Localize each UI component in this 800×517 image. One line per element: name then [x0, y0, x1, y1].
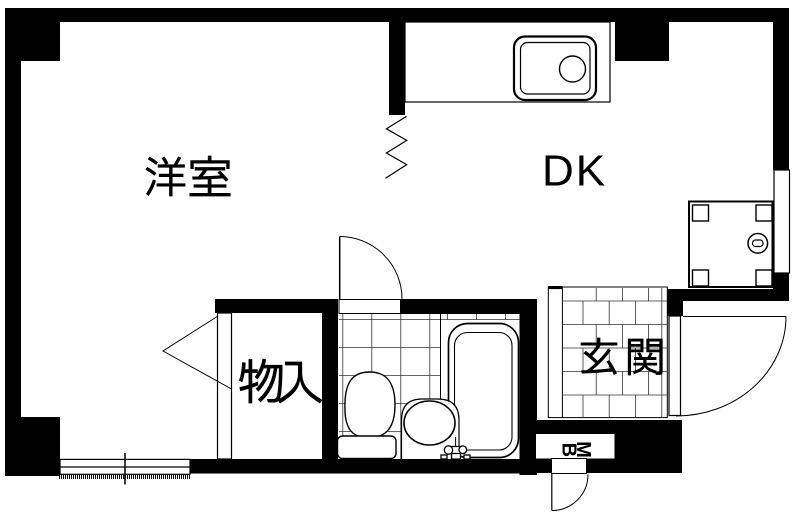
svg-text:M: M — [572, 441, 594, 458]
svg-text:DK: DK — [542, 147, 607, 196]
